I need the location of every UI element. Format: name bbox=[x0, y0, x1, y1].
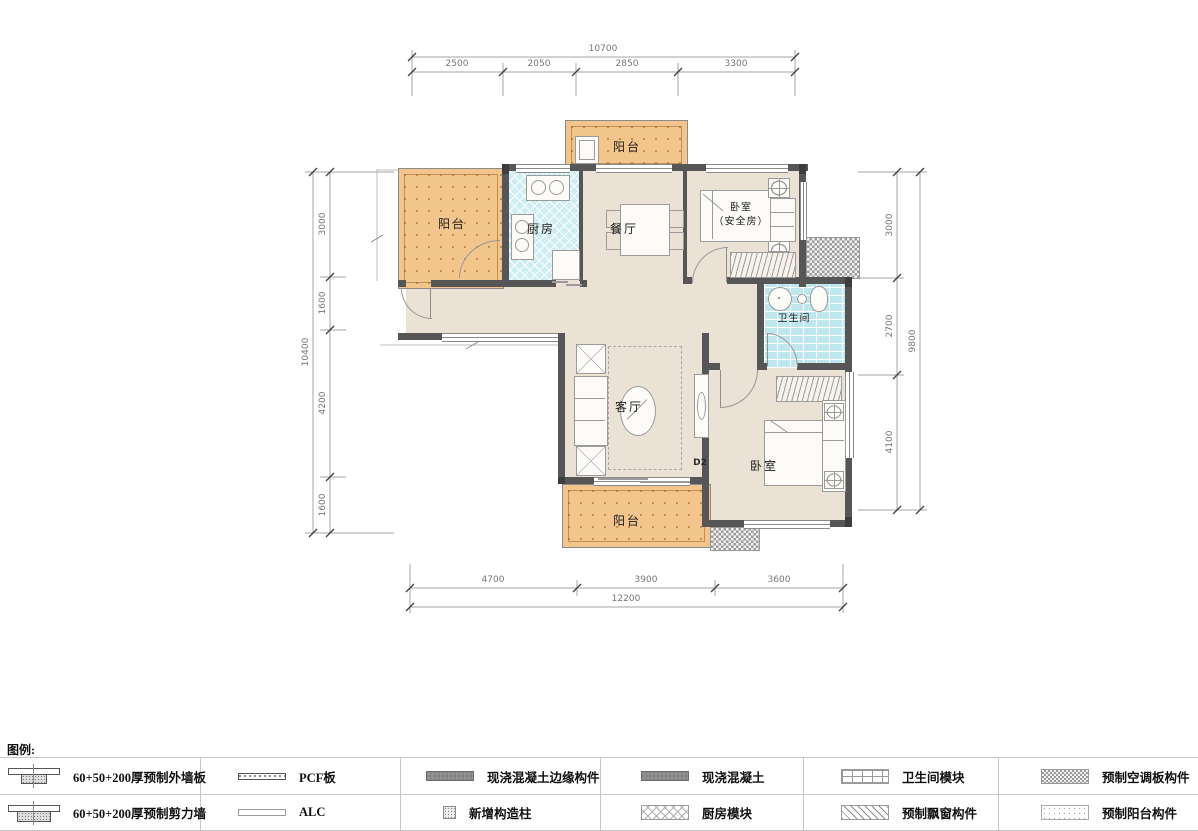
legend-item-shear-wall: 60+50+200厚预制剪力墙 bbox=[8, 795, 198, 830]
basin-drain bbox=[778, 297, 780, 299]
alc-symbol bbox=[238, 809, 286, 816]
wall-bedroom1-bottom-stub bbox=[683, 277, 692, 284]
dim-left-seg-1: 3000 bbox=[318, 213, 328, 236]
ceiling-unit-icon bbox=[824, 471, 844, 489]
legend-divider bbox=[600, 757, 601, 830]
window-hall-bottom bbox=[442, 333, 558, 342]
label-balcony-top: 阳台 bbox=[613, 139, 641, 155]
wall-kitchen-left bbox=[502, 164, 509, 287]
legend-item-ac-panel: 预制空调板构件 bbox=[1041, 758, 1197, 794]
wall-bathroom-bottom-right bbox=[797, 363, 845, 370]
shear-wall-symbol bbox=[8, 802, 60, 824]
legend-item-bay-window: 预制飘窗构件 bbox=[841, 795, 996, 830]
wall-cap bbox=[845, 277, 852, 287]
wall-kitchen-bottom bbox=[502, 280, 556, 287]
bathroom-floor-drain bbox=[797, 294, 807, 304]
kitchen-sliding-panel bbox=[552, 281, 568, 283]
kitchen-sliding-panel bbox=[566, 284, 582, 286]
cast-concrete-symbol bbox=[641, 771, 689, 781]
window-dining-top bbox=[596, 164, 672, 173]
dim-right-seg-3: 4100 bbox=[885, 431, 895, 454]
wall-entry-right bbox=[431, 280, 502, 287]
stove-burner bbox=[515, 238, 529, 252]
wall-hall-bottom bbox=[398, 333, 442, 340]
label-bathroom: 卫生间 bbox=[778, 312, 811, 326]
dim-right-seg-2: 2700 bbox=[885, 315, 895, 338]
legend-divider bbox=[998, 757, 999, 830]
floor-plan-sheet: 10700 2500 2050 2850 3300 10400 3000 160… bbox=[0, 0, 1198, 831]
floor-hallway bbox=[406, 287, 757, 333]
dim-left-seg-2: 1600 bbox=[318, 292, 328, 315]
wall-cap bbox=[845, 517, 852, 527]
bedroom1-door-leaf bbox=[726, 247, 727, 282]
ac-panel-lower bbox=[710, 527, 760, 551]
label-bedroom: 卧室 bbox=[750, 458, 778, 474]
cabinet-shelf-line bbox=[822, 440, 844, 441]
wall-entry-left-stub bbox=[398, 280, 406, 287]
living-armchair bbox=[576, 344, 606, 374]
legend-item-kitchen-module: 厨房模块 bbox=[641, 795, 801, 830]
bedroom2-wardrobe bbox=[776, 376, 842, 402]
bathroom-toilet bbox=[810, 286, 828, 312]
dim-bottom-seg-1: 4700 bbox=[482, 575, 505, 585]
legend-item-alc: ALC bbox=[238, 795, 398, 830]
water-heater-inner bbox=[579, 140, 595, 160]
legend-item-new-column: 新增构造柱 bbox=[443, 795, 598, 830]
dim-top-total: 10700 bbox=[589, 44, 618, 54]
dim-top-seg-1: 2500 bbox=[446, 59, 469, 69]
legend-title: 图例: bbox=[7, 741, 35, 758]
window-kitchen-top bbox=[516, 164, 570, 173]
wall-bedroom2-top-stub bbox=[709, 363, 720, 370]
kitchen-sink-bowl bbox=[531, 180, 546, 195]
label-bedroom-safe-line1: 卧室 bbox=[714, 202, 769, 216]
cabinet-shelf-line bbox=[770, 226, 794, 227]
bedroom1-cabinet bbox=[770, 198, 796, 242]
sofa-cushion-line bbox=[575, 398, 605, 399]
legend-divider bbox=[400, 757, 401, 830]
bay-window-symbol bbox=[841, 805, 889, 820]
floor-corridor bbox=[709, 287, 757, 370]
label-balcony-left: 阳台 bbox=[438, 216, 466, 232]
kitchen-module-symbol bbox=[641, 805, 689, 820]
bed-pillow-line bbox=[765, 432, 823, 433]
kitchen-fridge bbox=[552, 250, 580, 280]
exterior-wall-panel-symbol bbox=[8, 765, 60, 787]
legend-item-cast-concrete: 现浇混凝土 bbox=[641, 758, 801, 794]
wall-living-bottom-right bbox=[690, 477, 702, 484]
wall-cap bbox=[558, 477, 565, 484]
sliding-panel bbox=[598, 478, 648, 480]
ac-panel-upper bbox=[806, 237, 860, 279]
label-balcony-bottom: 阳台 bbox=[613, 513, 641, 529]
ceiling-unit-icon bbox=[824, 403, 844, 421]
dining-chair bbox=[669, 210, 684, 228]
bedroom2-bed bbox=[764, 420, 826, 486]
living-armchair bbox=[576, 446, 606, 476]
pcf-board-symbol bbox=[238, 773, 286, 780]
wall-cap bbox=[799, 164, 806, 174]
tv-icon bbox=[697, 392, 706, 420]
wall-cap bbox=[502, 164, 509, 174]
kitchen-sink-bowl bbox=[549, 180, 564, 195]
cast-edge-symbol bbox=[426, 771, 474, 781]
bedroom2-door-leaf bbox=[720, 370, 721, 407]
wall-right-upper bbox=[845, 277, 852, 372]
window-bedroom2-bottom bbox=[744, 520, 830, 529]
dim-bottom-seg-2: 3900 bbox=[635, 575, 658, 585]
label-door-d2: D2 bbox=[693, 458, 707, 468]
dim-top-seg-2: 2050 bbox=[528, 59, 551, 69]
legend-item-exterior-wall-panel: 60+50+200厚预制外墙板 bbox=[8, 758, 198, 794]
precast-balcony-symbol bbox=[1041, 805, 1089, 820]
wall-living-left bbox=[558, 333, 565, 484]
living-sofa bbox=[574, 376, 608, 446]
ac-panel-symbol bbox=[1041, 769, 1089, 784]
cabinet-shelf-line bbox=[770, 212, 794, 213]
bedroom1-wardrobe bbox=[730, 252, 796, 278]
label-bedroom-safe-line2: （安全房） bbox=[714, 215, 769, 229]
window-bedroom1-right bbox=[800, 182, 807, 240]
entry-door-leaf bbox=[430, 288, 431, 318]
bathroom-module-symbol bbox=[841, 769, 889, 784]
legend-item-bathroom-module: 卫生间模块 bbox=[841, 758, 996, 794]
legend-item-pcf-board: PCF板 bbox=[238, 758, 398, 794]
sofa-cushion-line bbox=[575, 420, 605, 421]
wall-bathroom-left bbox=[757, 284, 764, 370]
new-column-symbol bbox=[443, 806, 456, 819]
label-bedroom-safe: 卧室 （安全房） bbox=[714, 202, 769, 229]
wall-bathroom-bottom-left bbox=[757, 363, 767, 370]
label-kitchen: 厨房 bbox=[527, 221, 555, 237]
dim-left-seg-4: 1600 bbox=[318, 494, 328, 517]
dim-bottom-seg-3: 3600 bbox=[768, 575, 791, 585]
legend-item-precast-balcony: 预制阳台构件 bbox=[1041, 795, 1197, 830]
dim-bottom-total: 12200 bbox=[612, 594, 641, 604]
dim-right-seg-1: 3000 bbox=[885, 214, 895, 237]
wall-bedroom1-bottom bbox=[727, 277, 845, 284]
label-dining: 餐厅 bbox=[610, 221, 638, 237]
bathroom-basin bbox=[768, 287, 792, 311]
dim-left-seg-3: 4200 bbox=[318, 392, 328, 415]
legend-item-cast-edge: 现浇混凝土边缘构件 bbox=[426, 758, 598, 794]
dim-right-total: 9800 bbox=[908, 330, 918, 353]
dim-top-seg-3: 2850 bbox=[616, 59, 639, 69]
window-bedroom2-right bbox=[845, 372, 854, 458]
label-living: 客厅 bbox=[615, 399, 643, 415]
dining-chair bbox=[669, 232, 684, 250]
dim-top-seg-4: 3300 bbox=[725, 59, 748, 69]
legend-divider bbox=[803, 757, 804, 830]
ceiling-unit-icon bbox=[768, 178, 790, 198]
dim-left-total: 10400 bbox=[301, 338, 311, 367]
sliding-panel bbox=[640, 481, 690, 483]
window-bedroom1-top bbox=[706, 164, 788, 173]
bathroom-door-leaf bbox=[767, 333, 768, 366]
